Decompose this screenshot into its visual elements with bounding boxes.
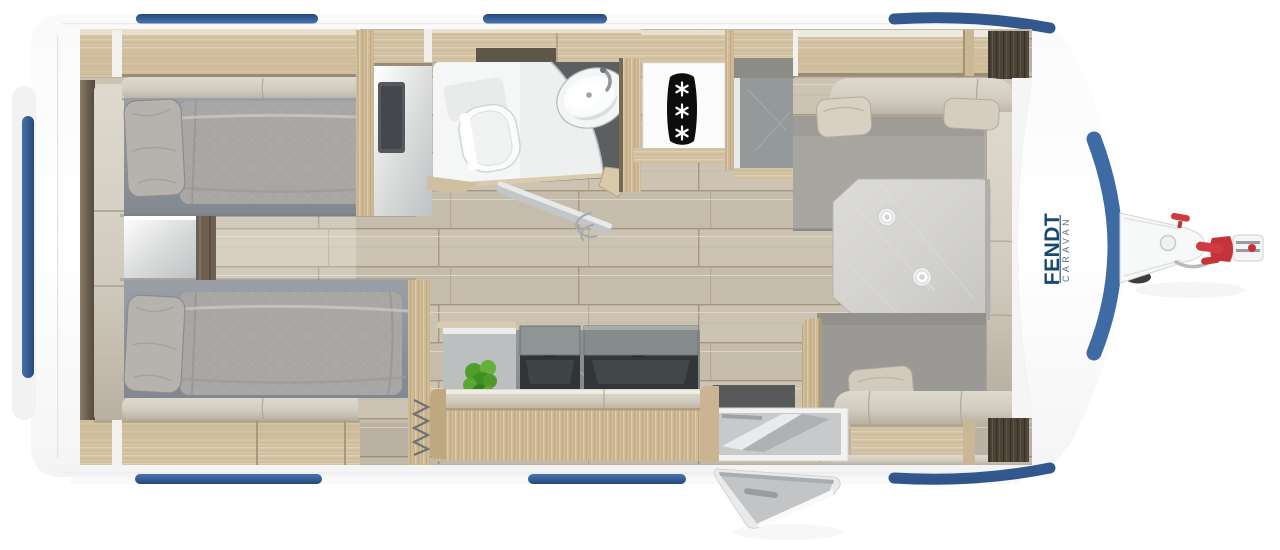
svg-text:CARAVAN: CARAVAN — [1061, 216, 1071, 282]
